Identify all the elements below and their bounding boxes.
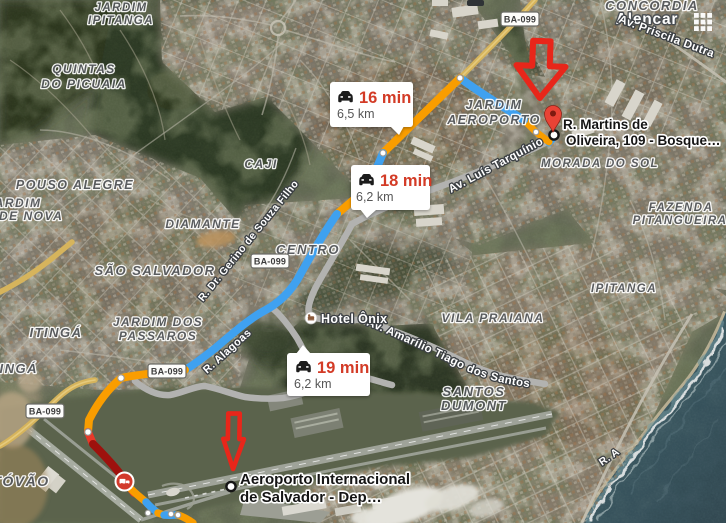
svg-text:19 min: 19 min [317, 359, 369, 377]
svg-text:BA-099: BA-099 [29, 407, 61, 417]
svg-text:Hotel Ônix: Hotel Ônix [321, 311, 388, 326]
svg-text:de Salvador - Dep…: de Salvador - Dep… [240, 489, 382, 506]
svg-text:SÃO SALVADOR: SÃO SALVADOR [94, 263, 215, 278]
svg-text:PITANGUEIRA: PITANGUEIRA [633, 215, 726, 227]
svg-text:SANTOS: SANTOS [443, 384, 506, 399]
svg-text:QUINTAS: QUINTAS [52, 62, 116, 76]
svg-text:Aeroporto Internacional: Aeroporto Internacional [240, 471, 410, 488]
svg-text:ITINGÁ: ITINGÁ [29, 325, 82, 340]
svg-text:JARDIM: JARDIM [94, 2, 147, 14]
svg-text:6,2 km: 6,2 km [294, 377, 332, 391]
svg-text:TÓVÃO: TÓVÃO [0, 472, 50, 489]
svg-text:Oliveira, 109 - Bosque…: Oliveira, 109 - Bosque… [566, 133, 721, 148]
svg-text:VILA PRAIANA: VILA PRAIANA [442, 311, 545, 325]
svg-text:ADE NOVA: ADE NOVA [0, 209, 63, 223]
svg-text:AEROPORTO: AEROPORTO [446, 113, 541, 127]
svg-text:16 min: 16 min [359, 89, 411, 107]
svg-text:IPITANGA: IPITANGA [88, 15, 154, 27]
svg-text:CAJI: CAJI [244, 157, 277, 171]
svg-text:6,5 km: 6,5 km [337, 107, 375, 121]
svg-text:18 min: 18 min [380, 172, 432, 190]
svg-text:FAZENDA: FAZENDA [649, 202, 714, 214]
svg-text:POUSO ALEGRE: POUSO ALEGRE [16, 178, 134, 192]
svg-text:JARDIM: JARDIM [0, 196, 42, 210]
svg-text:MORADA DO SOL: MORADA DO SOL [541, 158, 659, 170]
svg-text:BA-099: BA-099 [504, 15, 536, 25]
svg-text:JARDIM: JARDIM [466, 98, 523, 112]
svg-text:IPITANGA: IPITANGA [591, 283, 657, 295]
svg-text:BA-099: BA-099 [254, 257, 286, 267]
svg-text:PASSAROS: PASSAROS [119, 329, 197, 343]
svg-text:BA-099: BA-099 [151, 367, 183, 377]
svg-text:R. Martins de: R. Martins de [563, 117, 648, 132]
svg-text:JARDIM DOS: JARDIM DOS [113, 315, 203, 329]
svg-text:DUMONT: DUMONT [441, 398, 507, 413]
svg-text:DIAMANTE: DIAMANTE [165, 217, 240, 231]
svg-text:DO PICUAIA: DO PICUAIA [41, 77, 127, 91]
svg-text:6,2 km: 6,2 km [356, 190, 394, 204]
svg-text:TINGÁ: TINGÁ [0, 361, 38, 376]
